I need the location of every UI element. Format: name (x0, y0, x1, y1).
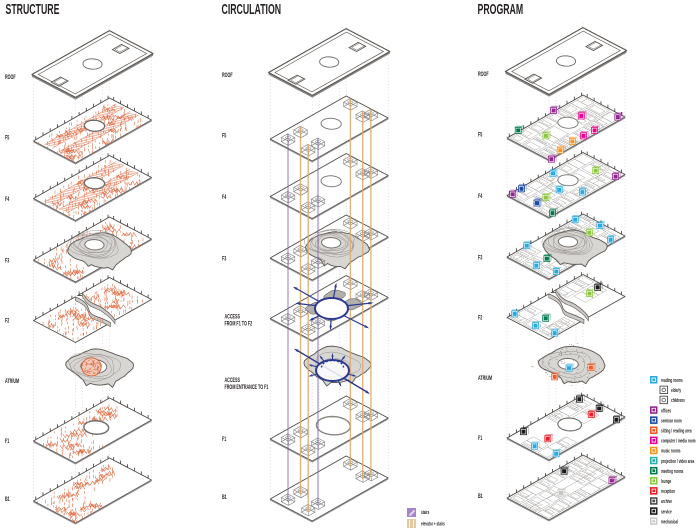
svg-text:sitting / reading area: sitting / reading area (661, 428, 692, 434)
svg-text:ROOF: ROOF (5, 74, 16, 81)
svg-text:childrens: childrens (671, 397, 685, 403)
svg-text:computer / media room: computer / media room (661, 438, 696, 444)
svg-text:B1: B1 (222, 494, 227, 501)
svg-text:reception: reception (661, 488, 675, 494)
svg-text:F4: F4 (5, 196, 9, 203)
svg-text:F4: F4 (478, 193, 482, 200)
svg-text:elderly: elderly (671, 387, 681, 393)
svg-text:F1: F1 (478, 435, 482, 442)
svg-text:CIRCULATION: CIRCULATION (222, 1, 282, 18)
svg-text:archive: archive (661, 498, 672, 504)
svg-text:F1: F1 (5, 438, 9, 445)
svg-text:F3: F3 (222, 256, 226, 263)
svg-text:F5: F5 (5, 135, 9, 142)
svg-text:B1: B1 (478, 493, 483, 500)
svg-text:F4: F4 (222, 194, 226, 201)
svg-text:service: service (661, 508, 672, 514)
svg-text:ATRIUM: ATRIUM (478, 375, 492, 382)
svg-text:ROOF: ROOF (478, 71, 489, 78)
svg-text:F3: F3 (5, 258, 9, 265)
svg-text:B1: B1 (5, 496, 10, 503)
svg-text:meeting rooms: meeting rooms (661, 468, 684, 474)
svg-text:lounge: lounge (661, 478, 672, 484)
svg-text:stairs: stairs (421, 509, 430, 515)
svg-text:elevator + stairs: elevator + stairs (421, 521, 445, 527)
svg-text:ATRIUM: ATRIUM (5, 378, 19, 385)
svg-text:FROM ENTRANCE TO F1: FROM ENTRANCE TO F1 (225, 384, 269, 391)
svg-text:seminar room: seminar room (661, 418, 682, 424)
svg-text:music rooms: music rooms (661, 448, 681, 454)
svg-text:FROM F1 TO F2: FROM F1 TO F2 (225, 321, 253, 328)
svg-text:F3: F3 (478, 255, 482, 262)
svg-text:F5: F5 (222, 133, 226, 140)
svg-text:ROOF: ROOF (222, 72, 233, 79)
svg-text:F1: F1 (222, 436, 226, 443)
svg-text:offices: offices (661, 407, 671, 413)
svg-text:reading rooms: reading rooms (661, 377, 683, 383)
svg-text:PROGRAM: PROGRAM (478, 1, 524, 18)
svg-text:projection / video area: projection / video area (661, 458, 695, 464)
svg-text:STRUCTURE: STRUCTURE (6, 1, 60, 18)
svg-text:mechanical: mechanical (661, 519, 678, 525)
svg-text:F5: F5 (478, 132, 482, 139)
svg-text:F2: F2 (5, 318, 9, 325)
svg-text:F2: F2 (478, 315, 482, 322)
